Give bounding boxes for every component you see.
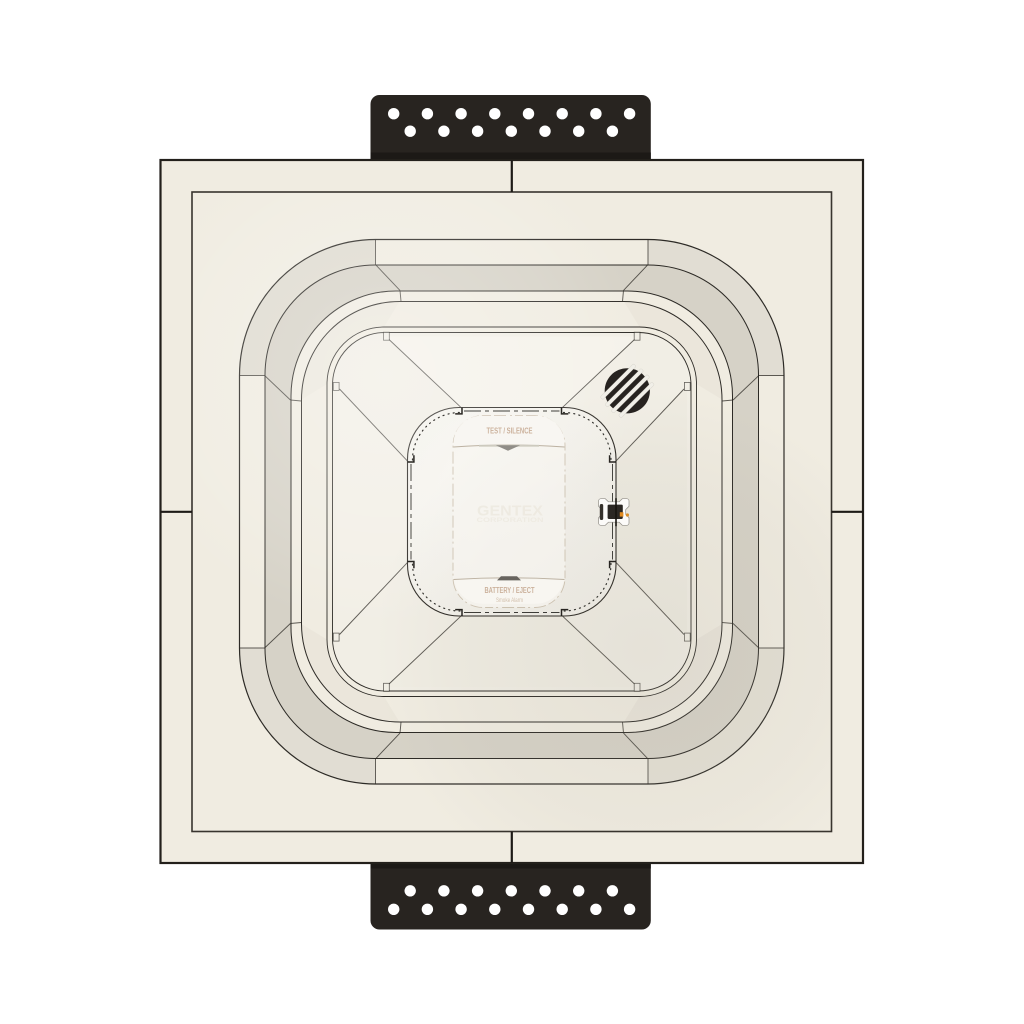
svg-text:BATTERY / EJECT: BATTERY / EJECT — [485, 586, 535, 595]
svg-text:CORPORATION: CORPORATION — [477, 517, 544, 524]
svg-text:TEST / SILENCE: TEST / SILENCE — [487, 427, 533, 436]
svg-text:Smoke Alarm: Smoke Alarm — [496, 598, 523, 604]
